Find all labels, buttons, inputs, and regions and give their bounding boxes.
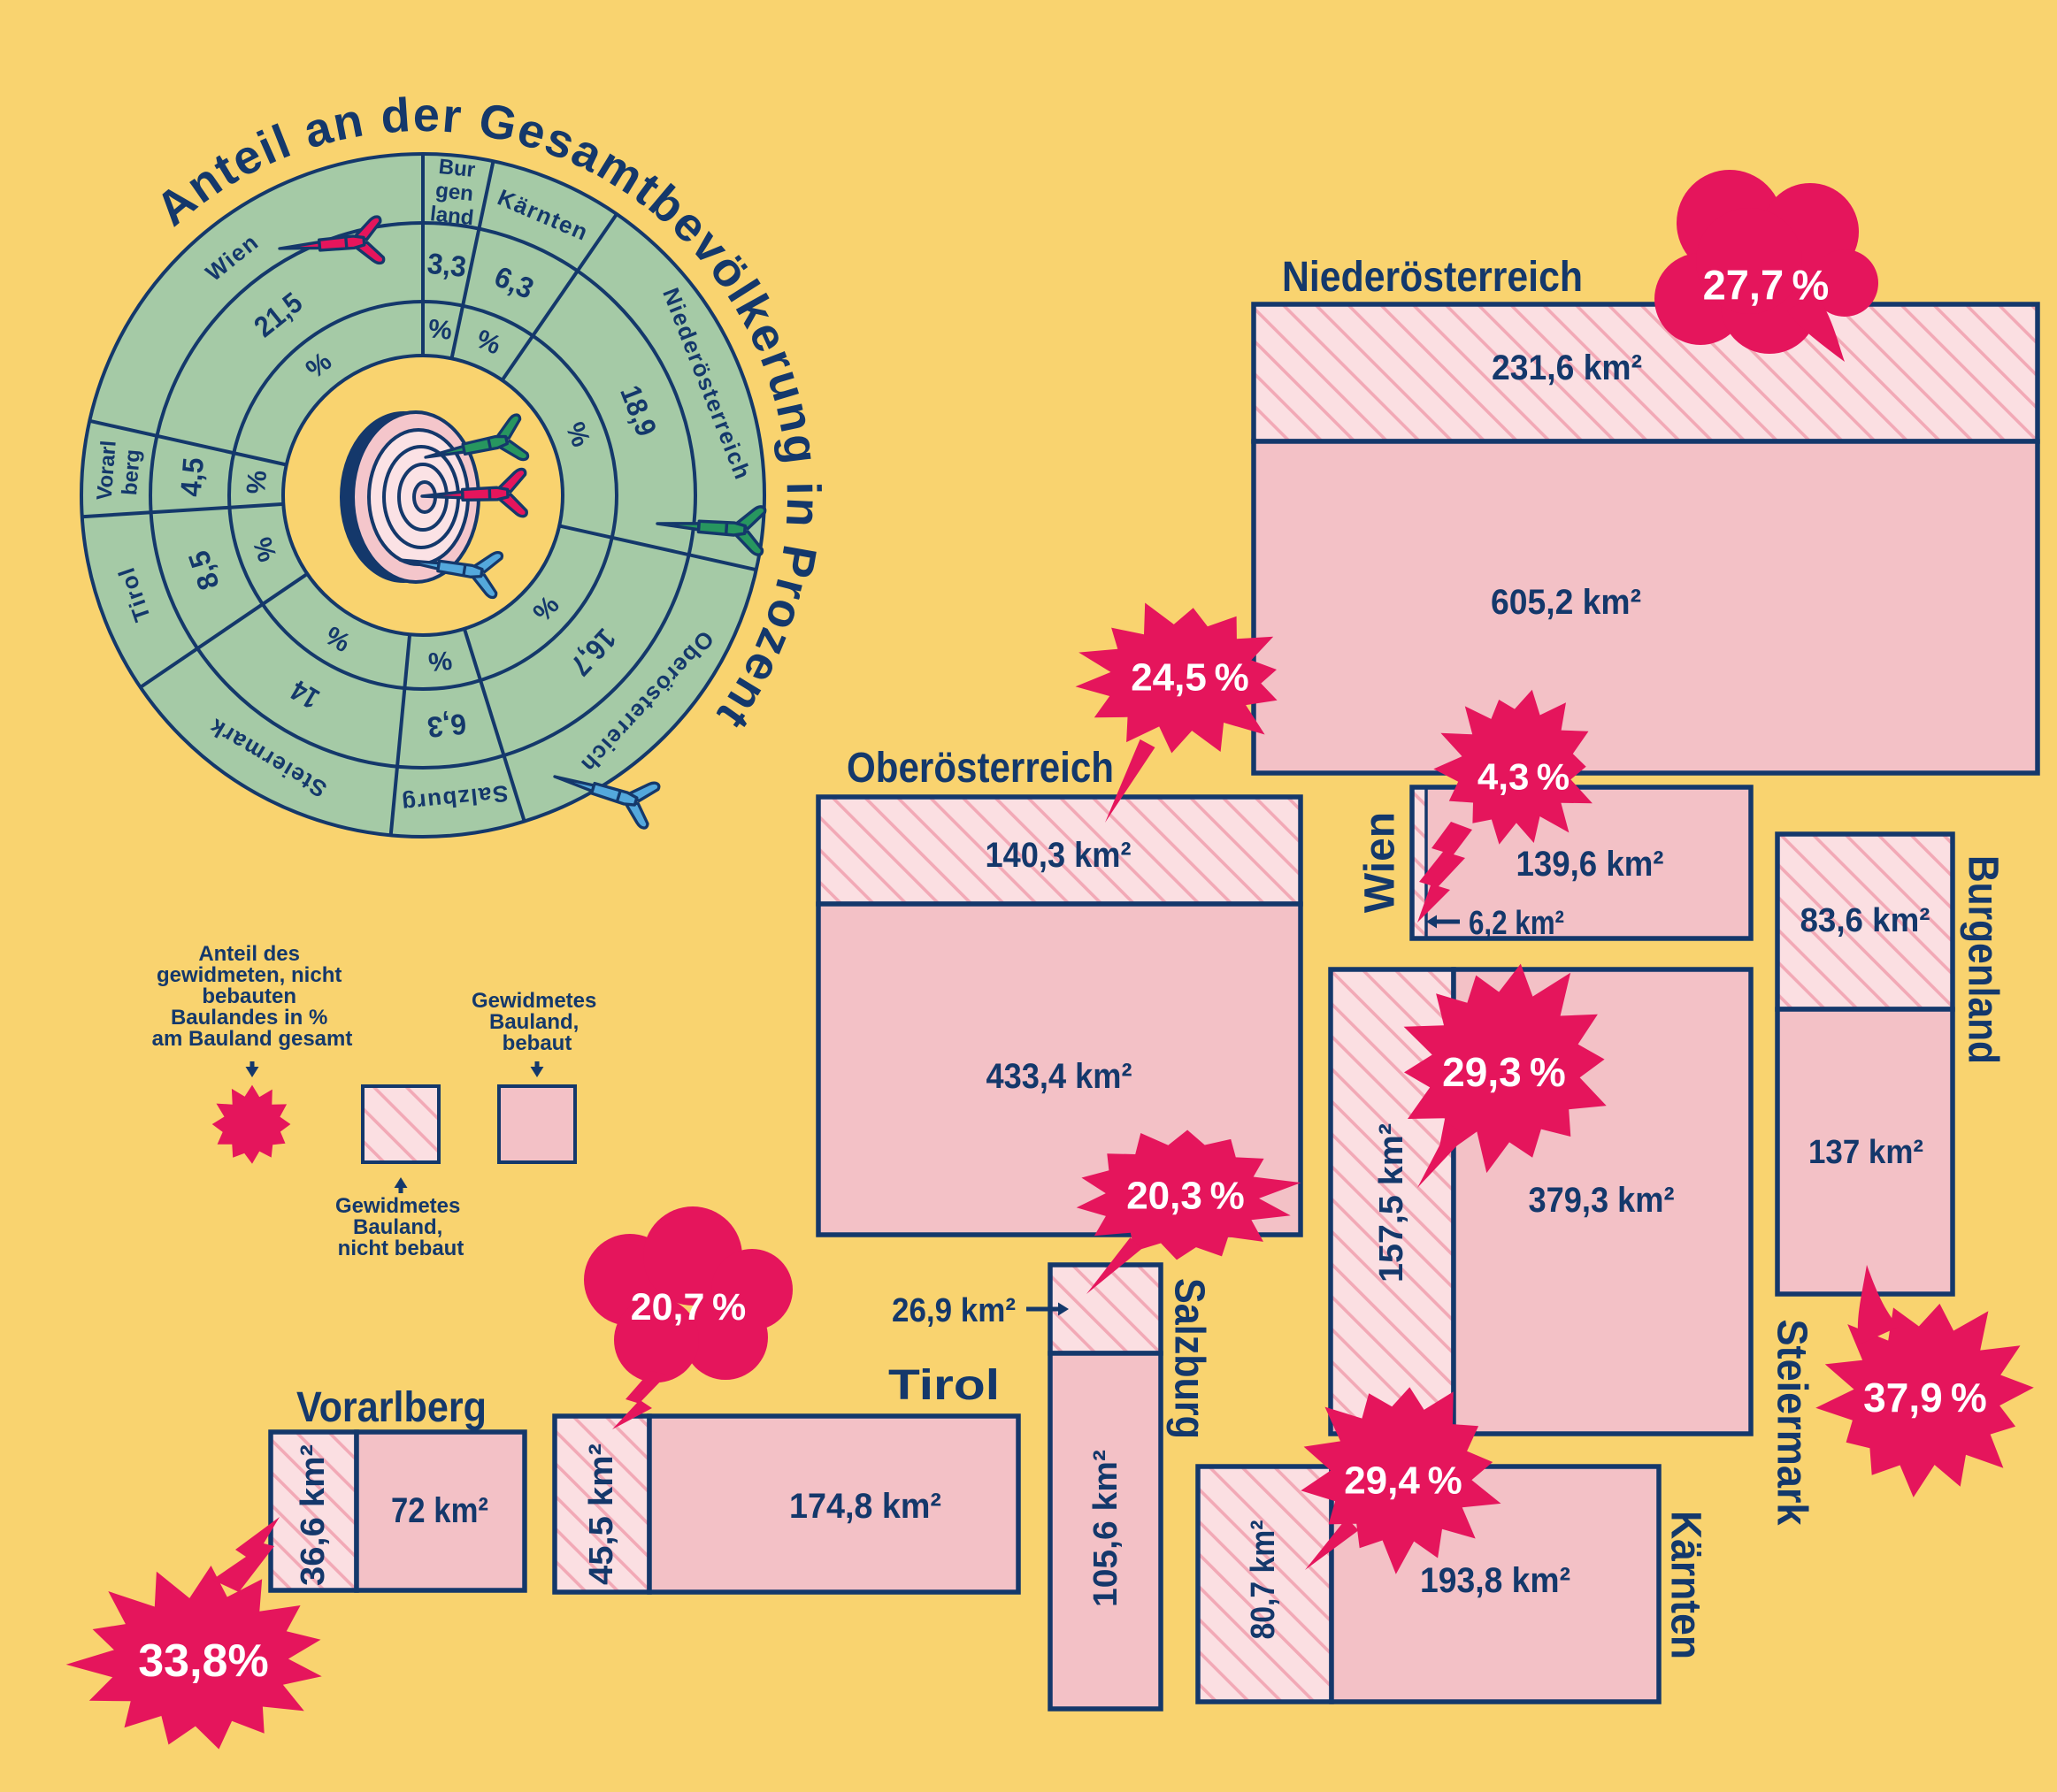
svg-text:37,9 %: 37,9 % <box>1863 1375 1987 1421</box>
svg-text:605,2 km²: 605,2 km² <box>1491 583 1641 622</box>
svg-text:20,3 %: 20,3 % <box>1126 1175 1245 1218</box>
svg-text:Oberösterreich: Oberösterreich <box>847 745 1114 792</box>
svg-text:193,8 km²: 193,8 km² <box>1420 1561 1570 1600</box>
svg-text:Vorarlberg: Vorarlberg <box>296 1384 487 1431</box>
svg-text:Wien: Wien <box>1357 812 1404 913</box>
svg-text:Gewidmetes Bauland, nicht beba: Gewidmetes Bauland, nicht bebaut <box>335 1194 466 1260</box>
svg-text:137 km²: 137 km² <box>1808 1134 1923 1171</box>
svg-text:379,3 km²: 379,3 km² <box>1529 1181 1675 1220</box>
svg-text:Tirol: Tirol <box>888 1362 1000 1409</box>
svg-text:24,5 %: 24,5 % <box>1131 656 1249 700</box>
svg-text:80,7 km²: 80,7 km² <box>1245 1520 1282 1640</box>
svg-text:4,5: 4,5 <box>174 456 210 498</box>
svg-text:20,7 %: 20,7 % <box>631 1286 747 1329</box>
svg-text:140,3 km²: 140,3 km² <box>986 836 1132 875</box>
svg-text:%: % <box>242 470 272 495</box>
svg-text:29,3 %: 29,3 % <box>1442 1049 1566 1095</box>
svg-text:6,3: 6,3 <box>426 708 468 744</box>
svg-text:231,6 km²: 231,6 km² <box>1492 348 1642 387</box>
svg-text:3,3: 3,3 <box>426 247 468 283</box>
svg-text:Kärnten: Kärnten <box>1662 1511 1709 1659</box>
svg-text:157,5 km²: 157,5 km² <box>1373 1123 1410 1283</box>
svg-text:4,3 %: 4,3 % <box>1478 756 1570 798</box>
svg-text:27,7 %: 27,7 % <box>1703 262 1830 309</box>
svg-text:174,8 km²: 174,8 km² <box>789 1487 941 1526</box>
svg-text:Burgenland: Burgenland <box>1960 855 2007 1064</box>
svg-text:Salzburg: Salzburg <box>1166 1278 1213 1439</box>
svg-text:45,5 km²: 45,5 km² <box>583 1444 620 1585</box>
svg-text:33,8%: 33,8% <box>138 1635 268 1687</box>
svg-text:433,4 km²: 433,4 km² <box>986 1057 1132 1096</box>
svg-text:%: % <box>427 645 454 677</box>
svg-text:26,9 km²: 26,9 km² <box>892 1292 1016 1329</box>
svg-text:72 km²: 72 km² <box>391 1491 488 1530</box>
svg-text:29,4 %: 29,4 % <box>1344 1459 1462 1503</box>
svg-text:36,6 km²: 36,6 km² <box>295 1444 332 1586</box>
svg-text:83,6 km²: 83,6 km² <box>1800 902 1930 939</box>
svg-text:Steiermark: Steiermark <box>1769 1320 1815 1526</box>
svg-text:%: % <box>427 314 454 346</box>
svg-text:Niederösterreich: Niederösterreich <box>1282 254 1583 301</box>
svg-text:139,6 km²: 139,6 km² <box>1516 845 1664 884</box>
svg-text:6,2 km²: 6,2 km² <box>1469 905 1564 942</box>
svg-text:105,6 km²: 105,6 km² <box>1087 1450 1124 1607</box>
